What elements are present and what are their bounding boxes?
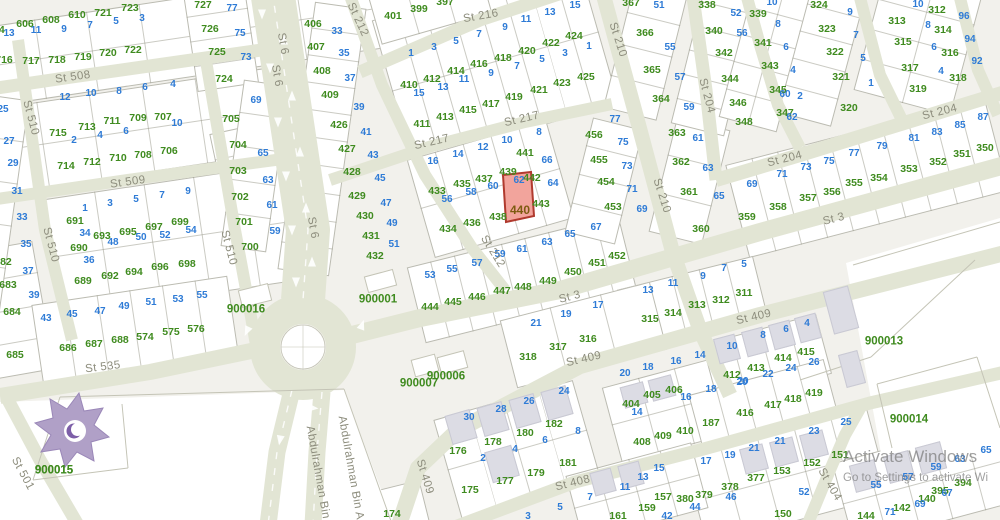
house-number: 47 xyxy=(94,307,105,317)
parcel-number: 364 xyxy=(652,94,670,105)
parcel-number: 443 xyxy=(532,199,550,210)
house-number: 49 xyxy=(386,219,397,229)
house-number: 17 xyxy=(700,457,711,467)
parcel-number: 710 xyxy=(109,153,127,164)
house-number: 27 xyxy=(3,137,14,147)
street-label: St 204 xyxy=(696,77,716,114)
house-number: 11 xyxy=(459,75,470,85)
house-number: 4 xyxy=(512,445,518,455)
house-number: 69 xyxy=(636,205,647,215)
parcel-number: 427 xyxy=(338,144,356,155)
parcel-number: 357 xyxy=(799,193,817,204)
parcel-number: 321 xyxy=(832,72,850,83)
parcel-number: 343 xyxy=(761,61,779,72)
house-number: 6 xyxy=(783,43,789,53)
house-number: 1 xyxy=(408,49,414,59)
parcel-number: 610 xyxy=(68,10,86,21)
parcel-number: 311 xyxy=(736,288,753,299)
parcel-number: 178 xyxy=(484,437,502,448)
house-number: 30 xyxy=(463,413,474,423)
house-number: 92 xyxy=(971,57,982,67)
house-number: 7 xyxy=(514,62,520,72)
street-label: St 6 xyxy=(304,216,319,240)
parcel-number: 684 xyxy=(3,307,21,318)
parcel-number: 407 xyxy=(307,42,325,53)
parcel-number: 608 xyxy=(42,15,60,26)
house-number: 75 xyxy=(617,138,628,148)
house-number: 65 xyxy=(713,192,724,202)
house-number: 59 xyxy=(683,103,694,113)
house-number: 2 xyxy=(71,136,77,146)
parcel-number: 726 xyxy=(201,24,219,35)
parcel-number: 174 xyxy=(383,509,401,520)
street-label: St 217 xyxy=(503,110,540,129)
house-number: 17 xyxy=(592,301,603,311)
house-number: 7 xyxy=(159,191,165,201)
street-label: St 216 xyxy=(462,8,499,26)
house-number: 52 xyxy=(730,9,741,19)
parcel-number: 352 xyxy=(929,157,947,168)
parcel-number: 416 xyxy=(470,59,488,70)
house-number: 35 xyxy=(338,49,349,59)
parcel-number: 351 xyxy=(953,149,971,160)
parcel-number: 723 xyxy=(121,3,139,14)
parcel-number: 454 xyxy=(597,177,615,188)
house-number: 8 xyxy=(760,331,766,341)
parcel-number: 319 xyxy=(909,84,927,95)
house-number: 64 xyxy=(547,179,558,189)
parcel-number: 690 xyxy=(70,243,88,254)
house-number: 51 xyxy=(388,240,399,250)
parcel-number: 314 xyxy=(934,25,952,36)
parcel-number: 719 xyxy=(74,52,92,63)
house-number: 55 xyxy=(446,265,457,275)
parcel-number: 434 xyxy=(439,224,457,235)
parcel-number: 721 xyxy=(94,8,112,19)
house-number: 83 xyxy=(931,128,942,138)
house-number: 29 xyxy=(7,159,18,169)
parcel-number: 360 xyxy=(692,224,710,235)
parcel-number: 422 xyxy=(542,38,560,49)
house-number: 57 xyxy=(471,259,482,269)
street-label: St 6 xyxy=(268,64,283,88)
highlighted-parcel-number: 440 xyxy=(510,204,530,216)
street-label: St 409 xyxy=(565,350,602,369)
house-number: 85 xyxy=(954,121,965,131)
house-number: 4 xyxy=(938,67,944,77)
house-number: 75 xyxy=(234,29,245,39)
street-label: St 204 xyxy=(766,150,803,170)
parcel-number: 377 xyxy=(747,473,765,484)
house-number: 25 xyxy=(840,418,851,428)
parcel-number: 152 xyxy=(803,458,821,469)
parcel-number: 727 xyxy=(194,0,212,10)
house-number: 39 xyxy=(28,291,39,301)
house-number: 43 xyxy=(40,314,51,324)
house-number: 7 xyxy=(853,31,859,41)
house-number: 9 xyxy=(185,187,191,197)
house-number: 7 xyxy=(721,264,727,274)
house-number: 25 xyxy=(0,105,9,115)
parcel-number: 397 xyxy=(436,0,454,7)
street-label: St 501 xyxy=(9,456,36,493)
house-number: 39 xyxy=(353,103,364,113)
parcel-number: 424 xyxy=(565,31,583,42)
parcel-number: 716 xyxy=(0,55,13,66)
parcel-number: 705 xyxy=(222,114,240,125)
house-number: 2 xyxy=(797,92,803,102)
house-number: 16 xyxy=(427,157,438,167)
house-number: 6 xyxy=(123,127,129,137)
house-number: 23 xyxy=(808,427,819,437)
house-number: 31 xyxy=(11,187,22,197)
parcel-number: 450 xyxy=(564,267,582,278)
house-number: 21 xyxy=(748,444,759,454)
parcel-number: 324 xyxy=(810,0,828,10)
house-number: 15 xyxy=(569,1,580,11)
parcel-number: 322 xyxy=(826,47,844,58)
house-number: 9 xyxy=(61,25,67,35)
parcel-number: 442 xyxy=(523,173,541,184)
house-number: 20 xyxy=(619,369,630,379)
house-number: 34 xyxy=(79,229,90,239)
house-number: 1 xyxy=(586,42,592,52)
parcel-number: 416 xyxy=(736,408,754,419)
parcel-number: 379 xyxy=(695,490,713,501)
district-label: 900006 xyxy=(427,371,465,383)
house-number: 87 xyxy=(977,113,988,123)
parcel-number: 444 xyxy=(421,302,439,313)
house-number: 6 xyxy=(542,436,548,446)
parcel-number: 448 xyxy=(514,282,532,293)
house-number: 96 xyxy=(958,12,969,22)
street-label: St 510 xyxy=(40,226,60,263)
house-number: 13 xyxy=(544,8,555,18)
parcel-number: 688 xyxy=(111,335,129,346)
watermark-line2: Go to Settings to activate Wi xyxy=(843,472,1000,484)
parcel-number: 315 xyxy=(641,314,659,325)
parcel-number: 313 xyxy=(888,16,906,27)
house-number: 1 xyxy=(82,204,88,214)
street-label: St 408 xyxy=(554,474,591,494)
parcel-number: 415 xyxy=(797,347,815,358)
parcel-number: 691 xyxy=(66,216,84,227)
house-number: 45 xyxy=(374,174,385,184)
house-number: 55 xyxy=(664,43,675,53)
house-number: 63 xyxy=(702,164,713,174)
house-number: 54 xyxy=(185,226,196,236)
house-number: 51 xyxy=(653,1,664,11)
house-number: 94 xyxy=(964,35,975,45)
parcel-number: 344 xyxy=(721,74,739,85)
house-number: 6 xyxy=(783,325,789,335)
house-number: 3 xyxy=(431,43,437,53)
house-number: 19 xyxy=(724,451,735,461)
house-number: 81 xyxy=(908,134,919,144)
house-number: 3 xyxy=(139,14,145,24)
parcel-number: 715 xyxy=(49,128,67,139)
house-number: 13 xyxy=(637,473,648,483)
house-number: 73 xyxy=(240,53,251,63)
parcel-number: 318 xyxy=(949,73,967,84)
parcel-number: 401 xyxy=(384,11,402,22)
house-number: 73 xyxy=(621,162,632,172)
parcel-number: 423 xyxy=(553,78,571,89)
street-label: St 535 xyxy=(85,360,122,376)
parcel-number: 417 xyxy=(482,99,500,110)
parcel-number: 576 xyxy=(187,324,205,335)
house-number: 13 xyxy=(642,286,653,296)
parcel-number: 720 xyxy=(99,48,117,59)
house-number: 5 xyxy=(539,55,545,65)
house-number: 3 xyxy=(562,49,568,59)
parcel-number: 725 xyxy=(208,47,226,58)
street-label: Abdulrahman Bin A xyxy=(335,415,365,520)
house-number: 36 xyxy=(83,256,94,266)
parcel-number: 418 xyxy=(784,394,802,405)
parcel-number: 320 xyxy=(840,103,858,114)
house-number: 53 xyxy=(424,271,435,281)
house-number: 66 xyxy=(541,156,552,166)
parcel-number: 399 xyxy=(410,4,428,15)
parcel-number: 429 xyxy=(348,191,366,202)
house-number: 7 xyxy=(476,30,482,40)
parcel-number: 708 xyxy=(134,150,152,161)
house-number: 24 xyxy=(785,364,796,374)
parcel-number: 153 xyxy=(773,466,791,477)
parcel-number: 317 xyxy=(901,63,919,74)
house-number: 77 xyxy=(609,115,620,125)
house-number: 71 xyxy=(776,170,787,180)
parcel-number: 419 xyxy=(505,92,523,103)
parcel-number: 144 xyxy=(857,511,875,520)
parcel-number: 445 xyxy=(444,297,462,308)
parcel-number: 342 xyxy=(715,48,733,59)
house-number: 69 xyxy=(746,180,757,190)
house-number: 55 xyxy=(196,291,207,301)
parcel-number: 410 xyxy=(676,426,694,437)
parcel-number: 430 xyxy=(356,211,374,222)
house-number: 6 xyxy=(931,43,937,53)
house-number: 44 xyxy=(689,503,700,513)
parcel-number: 451 xyxy=(588,258,606,269)
house-number: 33 xyxy=(16,213,27,223)
parcel-number: 722 xyxy=(124,45,142,56)
street-label: St 3 xyxy=(822,212,846,228)
house-number: 71 xyxy=(626,185,637,195)
parcel-number: 314 xyxy=(664,308,682,319)
house-number: 4 xyxy=(804,319,810,329)
house-number: 5 xyxy=(453,37,459,47)
parcel-number: 338 xyxy=(698,0,716,10)
house-number: 11 xyxy=(31,26,42,36)
house-number: 63 xyxy=(541,238,552,248)
house-number: 61 xyxy=(692,134,703,144)
parcel-number: 341 xyxy=(754,38,772,49)
street-label: St 3 xyxy=(558,290,582,306)
house-number: 5 xyxy=(741,260,747,270)
parcel-number: 181 xyxy=(559,458,577,469)
parcel-number: 689 xyxy=(74,276,92,287)
house-number: 77 xyxy=(226,4,237,14)
house-number: 43 xyxy=(367,151,378,161)
house-number: 10 xyxy=(85,89,96,99)
street-label: Abdulrahman Bin A xyxy=(303,425,333,520)
parcel-number: 704 xyxy=(229,140,247,151)
house-number: 10 xyxy=(171,119,182,129)
house-number: 50 xyxy=(135,233,146,243)
parcel-number: 365 xyxy=(643,65,661,76)
parcel-number: 686 xyxy=(59,343,77,354)
house-number: 62 xyxy=(786,113,797,123)
parcel-number: 695 xyxy=(119,227,137,238)
house-number: 14 xyxy=(694,351,705,361)
street-label: St 210 xyxy=(650,177,672,214)
parcel-number: 312 xyxy=(712,295,730,306)
house-number: 15 xyxy=(653,464,664,474)
parcel-number: 709 xyxy=(129,113,147,124)
parcel-number: 157 xyxy=(654,492,672,503)
parcel-number: 409 xyxy=(654,431,672,442)
street-label: St 404 xyxy=(815,467,843,504)
house-number: 79 xyxy=(876,142,887,152)
house-number: 58 xyxy=(465,188,476,198)
parcel-number: 714 xyxy=(57,161,75,172)
parcel-number: 698 xyxy=(178,259,196,270)
parcel-number: 449 xyxy=(539,276,557,287)
house-number: 15 xyxy=(413,89,424,99)
parcel-number: 683 xyxy=(0,280,17,291)
parcel-number: 355 xyxy=(845,178,863,189)
parcel-number: 574 xyxy=(136,332,154,343)
house-number: 19 xyxy=(560,310,571,320)
parcel-number: 367 xyxy=(622,0,640,8)
house-number: 26 xyxy=(523,397,534,407)
parcel-number: 575 xyxy=(162,327,180,338)
parcel-number: 180 xyxy=(516,428,534,439)
house-number: 10 xyxy=(766,0,777,8)
house-number: 35 xyxy=(20,240,31,250)
parcel-number: 161 xyxy=(609,511,627,520)
house-number: 9 xyxy=(700,272,706,282)
house-number: 8 xyxy=(925,21,931,31)
parcel-number: 685 xyxy=(6,350,24,361)
parcel-number: 417 xyxy=(764,400,782,411)
house-number: 2 xyxy=(480,454,486,464)
house-number: 9 xyxy=(847,8,853,18)
street-label: St 510 xyxy=(20,99,40,136)
house-number: 60 xyxy=(779,90,790,100)
house-number: 5 xyxy=(133,195,139,205)
parcel-number: 405 xyxy=(643,390,661,401)
parcel-number: 408 xyxy=(633,437,651,448)
parcel-number: 712 xyxy=(83,157,101,168)
street-label: St 204 xyxy=(921,103,958,123)
parcel-number: 696 xyxy=(151,262,169,273)
house-number: 5 xyxy=(557,503,563,513)
house-number: 18 xyxy=(642,363,653,373)
district-label: 900014 xyxy=(890,414,928,426)
parcel-number: 340 xyxy=(705,26,723,37)
parcel-number: 687 xyxy=(85,339,103,350)
house-number: 46 xyxy=(725,493,736,503)
parcel-number: 718 xyxy=(48,55,66,66)
house-number: 20 xyxy=(736,378,747,388)
parcel-number: 353 xyxy=(900,164,918,175)
house-number: 10 xyxy=(912,0,923,10)
house-number: 60 xyxy=(487,182,498,192)
parcel-number: 363 xyxy=(668,128,686,139)
parcel-number: 420 xyxy=(518,46,536,57)
labels-layer: 6046066086107217237167177187197207227277… xyxy=(0,0,1000,520)
house-number: 11 xyxy=(620,483,631,493)
house-number: 67 xyxy=(590,223,601,233)
parcel-number: 421 xyxy=(530,85,548,96)
house-number: 5 xyxy=(860,54,866,64)
map-canvas[interactable]: 6046066086107217237167177187197207227277… xyxy=(0,0,1000,520)
parcel-number: 177 xyxy=(496,476,514,487)
house-number: 16 xyxy=(670,357,681,367)
parcel-number: 358 xyxy=(769,202,787,213)
parcel-number: 453 xyxy=(604,202,622,213)
house-number: 13 xyxy=(3,29,14,39)
house-number: 8 xyxy=(575,427,581,437)
house-number: 26 xyxy=(808,358,819,368)
parcel-number: 724 xyxy=(215,74,233,85)
house-number: 42 xyxy=(661,512,672,520)
house-number: 21 xyxy=(530,319,541,329)
parcel-number: 150 xyxy=(774,509,792,520)
activation-watermark: Activate Windows Go to Settings to activ… xyxy=(843,447,1000,484)
house-number: 1 xyxy=(868,79,874,89)
parcel-number: 426 xyxy=(330,120,348,131)
house-number: 8 xyxy=(536,128,542,138)
parcel-number: 682 xyxy=(0,257,12,268)
house-number: 37 xyxy=(344,74,355,84)
house-number: 61 xyxy=(266,201,277,211)
parcel-number: 711 xyxy=(104,116,121,127)
house-number: 51 xyxy=(145,298,156,308)
parcel-number: 179 xyxy=(527,468,545,479)
house-number: 4 xyxy=(790,66,796,76)
house-number: 7 xyxy=(587,493,593,503)
district-label: 900001 xyxy=(359,294,397,306)
parcel-number: 692 xyxy=(101,271,119,282)
parcel-number: 362 xyxy=(672,157,690,168)
house-number: 3 xyxy=(525,512,531,520)
parcel-number: 318 xyxy=(519,352,537,363)
parcel-number: 447 xyxy=(493,286,511,297)
parcel-number: 359 xyxy=(738,212,756,223)
house-number: 4 xyxy=(97,131,103,141)
parcel-number: 142 xyxy=(893,503,911,514)
house-number: 24 xyxy=(558,387,569,397)
parcel-number: 446 xyxy=(468,292,486,303)
parcel-number: 717 xyxy=(22,56,40,67)
parcel-number: 408 xyxy=(313,66,331,77)
parcel-number: 323 xyxy=(818,24,836,35)
district-label: 900015 xyxy=(35,465,73,477)
house-number: 33 xyxy=(331,27,342,37)
parcel-number: 431 xyxy=(362,231,380,242)
parcel-number: 346 xyxy=(729,98,747,109)
house-number: 11 xyxy=(521,15,532,25)
house-number: 45 xyxy=(66,310,77,320)
house-number: 3 xyxy=(107,199,113,209)
parcel-number: 418 xyxy=(494,53,512,64)
parcel-number: 713 xyxy=(78,122,96,133)
parcel-number: 428 xyxy=(343,167,361,178)
